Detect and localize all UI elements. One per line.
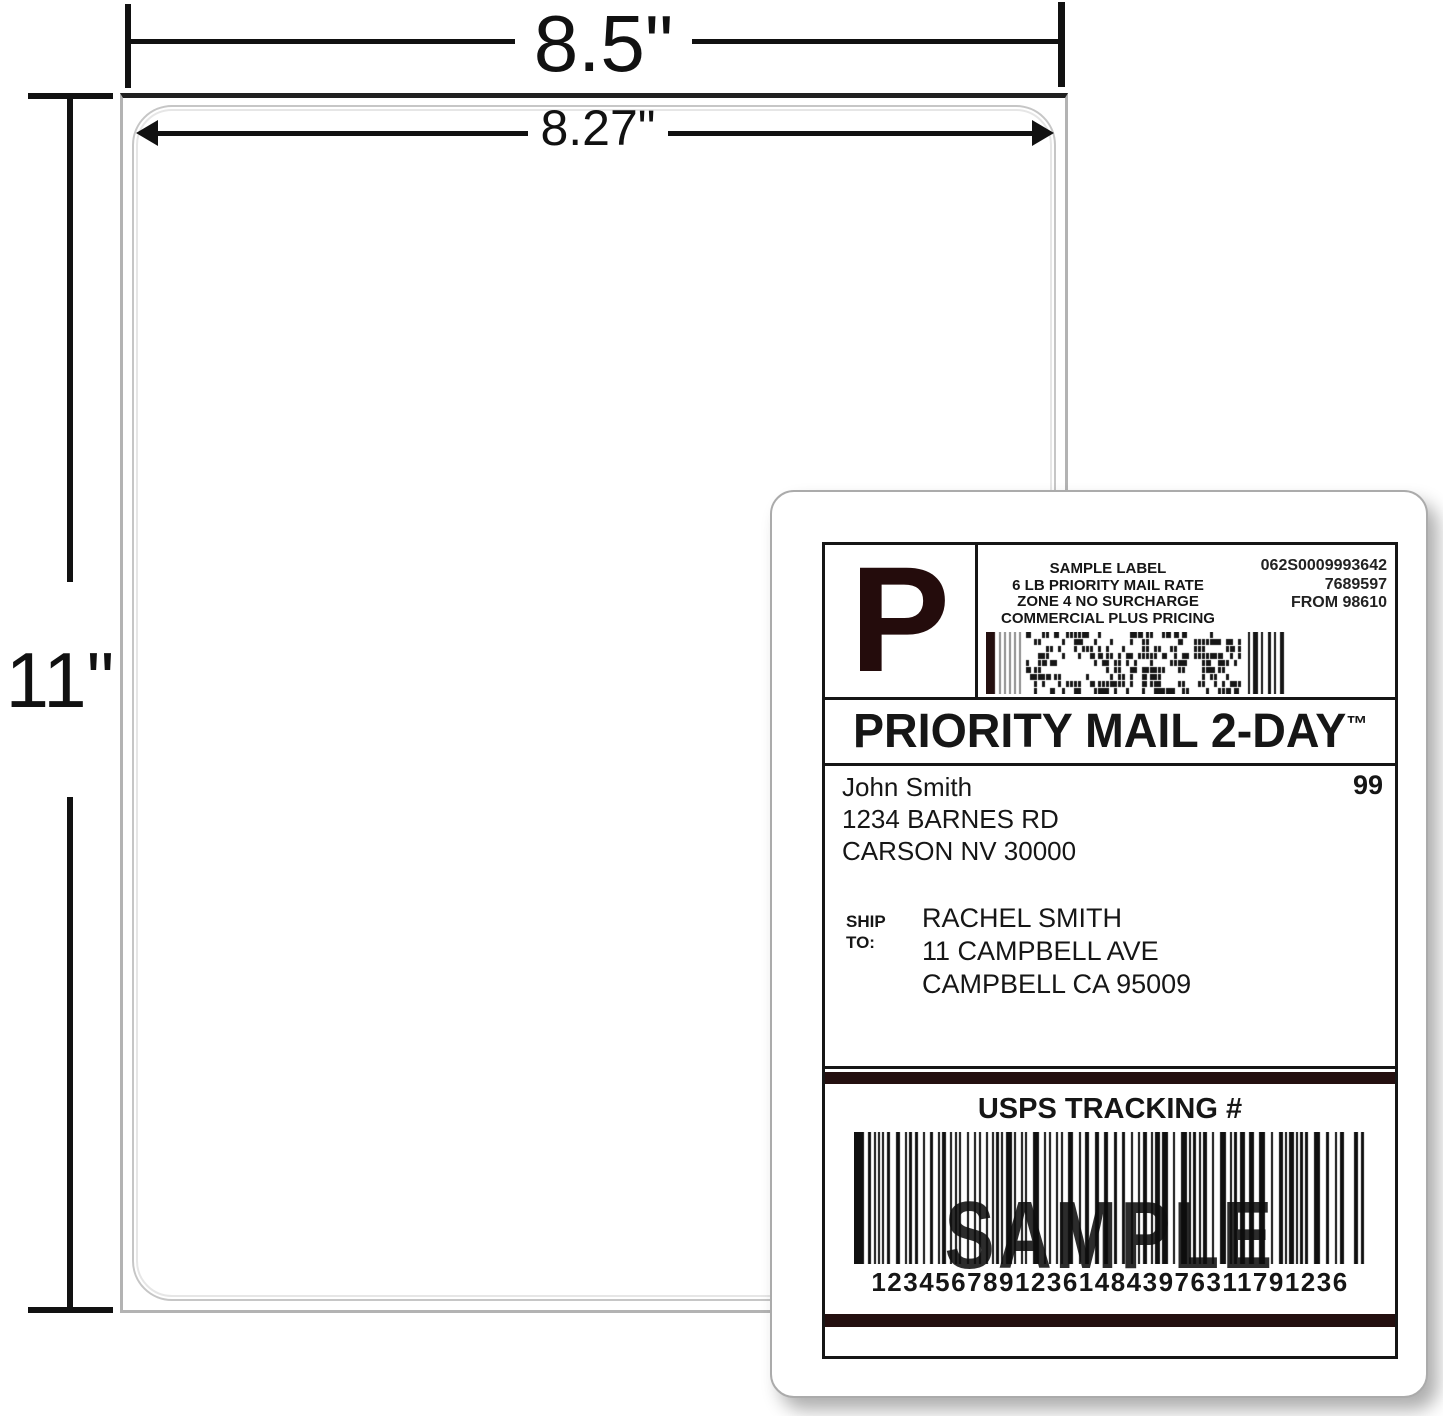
service-indicator-p: P	[850, 544, 950, 694]
recipient-line: RACHEL SMITH	[922, 902, 1191, 935]
service-indicator-cell: P	[825, 545, 978, 697]
header-origin-text: 062S0009993642 7689597 FROM 98610	[1261, 557, 1387, 613]
left-arrowhead-icon	[136, 120, 158, 146]
sheet-width-label: 8.5"	[515, 0, 692, 88]
divider-bar-bottom	[825, 1314, 1395, 1327]
ship-to-label: SHIP TO:	[846, 911, 886, 953]
header-right-line: FROM 98610	[1261, 594, 1387, 613]
sample-watermark: SAMPLE	[945, 1188, 1276, 1284]
dimension-line	[67, 797, 73, 1313]
header-center-text: SAMPLE LABEL 6 LB PRIORITY MAIL RATE ZON…	[980, 561, 1236, 627]
dimension-line	[156, 131, 528, 136]
recipient-address: RACHEL SMITH 11 CAMPBELL AVE CAMPBELL CA…	[922, 902, 1191, 1001]
sheet-height-label: 11"	[0, 638, 120, 722]
label-card: P SAMPLE LABEL 6 LB PRIORITY MAIL RATE Z…	[770, 490, 1428, 1398]
header-line: SAMPLE LABEL	[980, 561, 1236, 578]
tracking-heading: USPS TRACKING #	[978, 1093, 1242, 1125]
service-banner: PRIORITY MAIL 2-DAY™	[825, 700, 1395, 766]
printable-width-label: 8.27"	[528, 100, 668, 156]
tracking-section: USPS TRACKING # SAMPLE 12345678912361484…	[825, 1084, 1395, 1314]
ship-to-line: SHIP	[846, 911, 886, 932]
dimension-line	[131, 39, 515, 44]
banner-label: PRIORITY MAIL 2-DAY™	[853, 704, 1368, 759]
address-section: John Smith 1234 BARNES RD CARSON NV 3000…	[825, 766, 1395, 1069]
pdf417-barcode	[986, 632, 1288, 694]
header-line: 6 LB PRIORITY MAIL RATE	[980, 578, 1236, 595]
dimension-tick-right	[1058, 2, 1065, 87]
banner-text: PRIORITY MAIL 2-DAY	[853, 705, 1346, 758]
zone-number: 99	[1353, 770, 1383, 801]
header-right-line: 062S0009993642	[1261, 557, 1387, 576]
sender-line: 1234 BARNES RD	[842, 803, 1076, 835]
dimension-line	[692, 39, 1058, 44]
shipping-label: P SAMPLE LABEL 6 LB PRIORITY MAIL RATE Z…	[822, 542, 1398, 1359]
right-arrowhead-icon	[1032, 120, 1054, 146]
sender-address: John Smith 1234 BARNES RD CARSON NV 3000…	[842, 771, 1076, 867]
trademark-symbol: ™	[1346, 711, 1367, 736]
header-right-line: 7689597	[1261, 576, 1387, 595]
dimension-tick-left	[125, 4, 131, 88]
sender-line: CARSON NV 30000	[842, 835, 1076, 867]
header-line: ZONE 4 NO SURCHARGE	[980, 594, 1236, 611]
recipient-line: 11 CAMPBELL AVE	[922, 935, 1191, 968]
header-line: COMMERCIAL PLUS PRICING	[980, 611, 1236, 628]
dimension-line	[67, 93, 73, 582]
sender-line: John Smith	[842, 771, 1076, 803]
ship-to-line: TO:	[846, 932, 886, 953]
header-info: SAMPLE LABEL 6 LB PRIORITY MAIL RATE ZON…	[978, 545, 1395, 697]
label-header: P SAMPLE LABEL 6 LB PRIORITY MAIL RATE Z…	[825, 545, 1395, 700]
recipient-line: CAMPBELL CA 95009	[922, 968, 1191, 1001]
product-image: 8.5" 8.27" 11" P SAMPLE LABEL 6 LB PR	[0, 0, 1443, 1416]
divider-bar-top	[825, 1072, 1395, 1084]
dimension-line	[668, 131, 1034, 136]
